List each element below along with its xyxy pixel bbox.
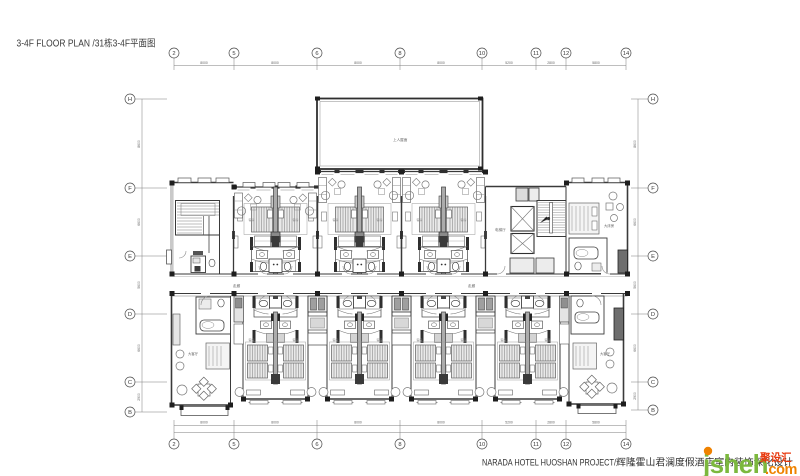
svg-text:2: 2 (172, 51, 175, 57)
svg-text:12: 12 (563, 442, 569, 448)
svg-text:5600: 5600 (633, 281, 637, 289)
svg-text:电梯厅: 电梯厅 (495, 227, 506, 232)
svg-text:5: 5 (232, 51, 235, 57)
svg-text:5800: 5800 (592, 61, 600, 65)
svg-text:6600: 6600 (137, 344, 141, 352)
svg-text:8: 8 (398, 51, 401, 57)
svg-text:2: 2 (172, 442, 175, 448)
svg-text:上人屋面: 上人屋面 (393, 137, 408, 142)
svg-text:F: F (128, 186, 132, 192)
svg-text:5800: 5800 (592, 421, 600, 425)
svg-text:C: C (128, 380, 132, 386)
svg-text:B: B (128, 410, 132, 416)
svg-text:2800: 2800 (547, 61, 555, 65)
svg-text:6: 6 (315, 51, 318, 57)
svg-text:8000: 8000 (200, 61, 208, 65)
svg-text:8000: 8000 (354, 61, 362, 65)
svg-text:8: 8 (398, 442, 401, 448)
svg-text:8600: 8600 (137, 140, 141, 148)
svg-text:B: B (651, 408, 655, 414)
svg-text:大客厅: 大客厅 (600, 351, 611, 356)
svg-text:3-4F FLOOR PLAN /31栋3-4F平面图: 3-4F FLOOR PLAN /31栋3-4F平面图 (17, 37, 156, 50)
svg-text:8000: 8000 (271, 421, 279, 425)
svg-text:8000: 8000 (200, 421, 208, 425)
svg-text:6: 6 (315, 442, 318, 448)
svg-text:E: E (651, 254, 655, 260)
svg-text:8000: 8000 (437, 421, 445, 425)
svg-text:11: 11 (533, 51, 539, 57)
svg-text:D: D (128, 312, 132, 318)
svg-text:E: E (128, 254, 132, 260)
svg-text:5600: 5600 (137, 281, 141, 289)
svg-text:走廊: 走廊 (233, 283, 241, 288)
svg-text:6600: 6600 (633, 218, 637, 226)
svg-text:2800: 2800 (547, 421, 555, 425)
svg-text:8000: 8000 (271, 61, 279, 65)
svg-text:10: 10 (479, 51, 485, 57)
svg-text:8600: 8600 (633, 140, 637, 148)
svg-text:F: F (651, 186, 655, 192)
svg-text:6600: 6600 (633, 344, 637, 352)
svg-text:5200: 5200 (505, 61, 513, 65)
svg-text:10: 10 (479, 442, 485, 448)
svg-text:5: 5 (232, 442, 235, 448)
svg-text:2900: 2900 (137, 393, 141, 401)
svg-text:大客厅: 大客厅 (188, 351, 199, 356)
svg-text:6600: 6600 (137, 218, 141, 226)
svg-text:2900: 2900 (633, 392, 637, 400)
svg-text:11: 11 (533, 442, 539, 448)
svg-text:12: 12 (563, 51, 569, 57)
svg-text:H: H (128, 97, 132, 103)
svg-text:走廊: 走廊 (468, 283, 476, 288)
svg-text:D: D (651, 312, 655, 318)
svg-text:8000: 8000 (354, 421, 362, 425)
svg-text:聚设汇: 聚设汇 (759, 451, 792, 464)
svg-text:jsheh: jsheh (702, 449, 768, 476)
svg-text:C: C (651, 380, 655, 386)
svg-text:14: 14 (623, 51, 630, 57)
svg-text:5200: 5200 (505, 421, 513, 425)
svg-text:大床房: 大床房 (604, 223, 615, 228)
svg-text:14: 14 (623, 442, 630, 448)
svg-text:H: H (651, 97, 655, 103)
svg-text:.com: .com (765, 462, 797, 476)
svg-text:8000: 8000 (437, 61, 445, 65)
